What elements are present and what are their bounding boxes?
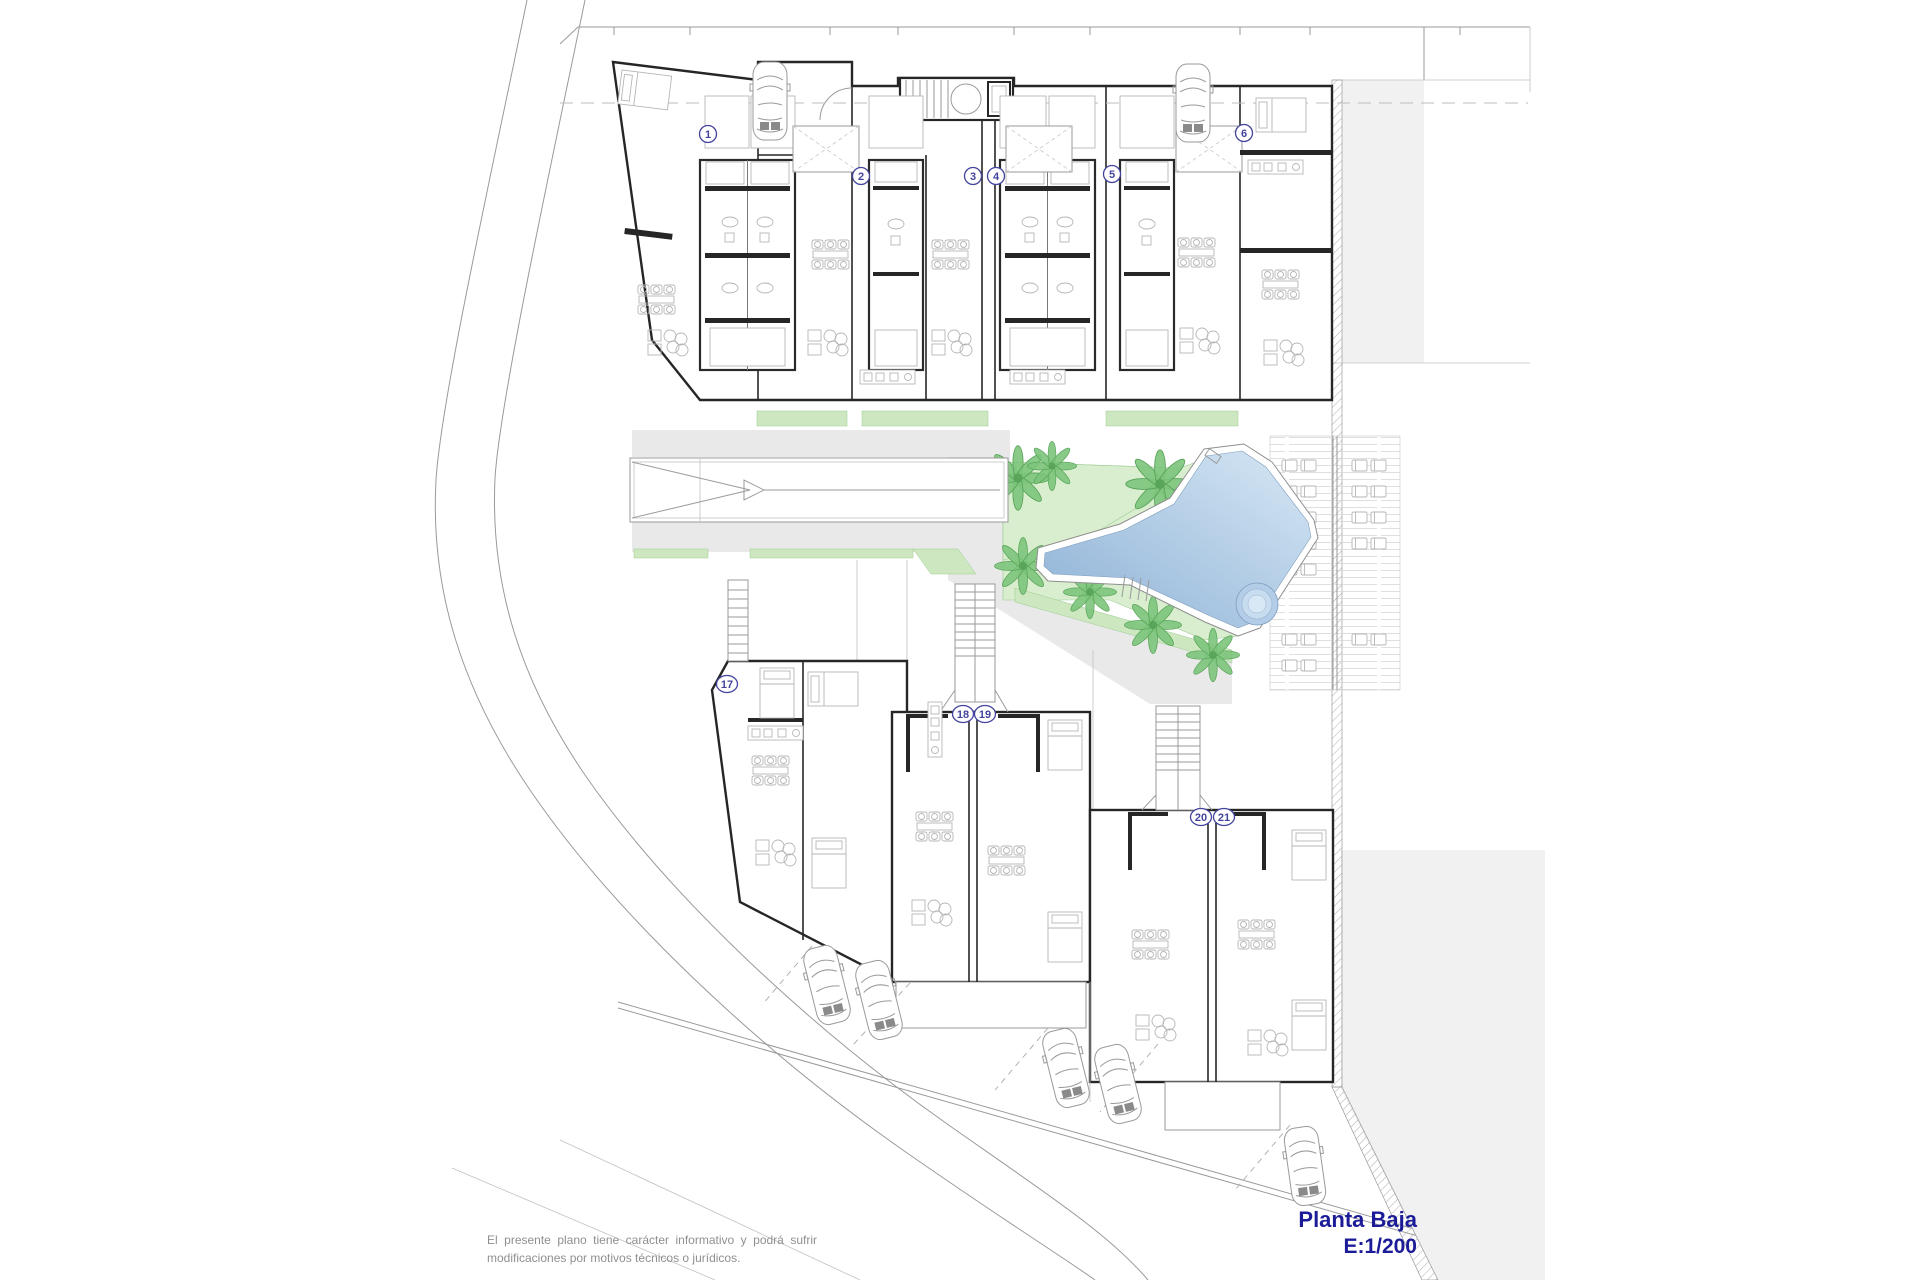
terrace-green-strip bbox=[862, 411, 988, 426]
unit-label-1: 1 bbox=[700, 126, 717, 143]
unit-label-18: 18 bbox=[953, 706, 974, 723]
disclaimer-line2: modificaciones por motivos técnicos o ju… bbox=[487, 1249, 817, 1267]
stair-s2 bbox=[1142, 706, 1212, 810]
floor-plan-drawing: 1234561718192021 bbox=[0, 0, 1920, 1280]
side-street-area bbox=[1342, 80, 1424, 363]
unit-label-17: 17 bbox=[717, 676, 738, 693]
unit-label-21: 21 bbox=[1214, 809, 1235, 826]
svg-text:1: 1 bbox=[705, 129, 711, 141]
unit-label-4: 4 bbox=[988, 168, 1005, 185]
svg-text:4: 4 bbox=[993, 171, 1000, 183]
jacuzzi bbox=[1236, 583, 1278, 625]
garage-ramp bbox=[630, 458, 1008, 522]
unit-label-2: 2 bbox=[853, 168, 870, 185]
unit-label-19: 19 bbox=[975, 706, 996, 723]
floor-plan-page: 1234561718192021 Planta Baja E:1/200 El … bbox=[0, 0, 1920, 1280]
svg-text:21: 21 bbox=[1218, 812, 1230, 824]
lower-buildings bbox=[712, 580, 1333, 1190]
stair-b1 bbox=[728, 580, 748, 661]
disclaimer-note: El presente plano tiene carácter informa… bbox=[487, 1231, 817, 1267]
unit-label-3: 3 bbox=[965, 168, 982, 185]
disclaimer-line1: El presente plano tiene carácter informa… bbox=[487, 1231, 817, 1249]
plan-title: Planta Baja bbox=[1037, 1206, 1417, 1234]
svg-text:17: 17 bbox=[721, 679, 733, 691]
block-unit17 bbox=[712, 580, 907, 988]
plan-scale: E:1/200 bbox=[1037, 1234, 1417, 1260]
unit-label-6: 6 bbox=[1236, 125, 1253, 142]
svg-text:2: 2 bbox=[858, 171, 864, 183]
unit-label-5: 5 bbox=[1104, 166, 1121, 183]
boundary-ticks bbox=[614, 27, 1460, 35]
svg-text:3: 3 bbox=[970, 171, 976, 183]
path-green-strip bbox=[634, 549, 708, 558]
unit-label-20: 20 bbox=[1191, 809, 1212, 826]
terrace-green-strip bbox=[757, 411, 847, 426]
svg-text:18: 18 bbox=[957, 709, 969, 721]
block-units18-19 bbox=[892, 584, 1090, 1028]
svg-text:20: 20 bbox=[1195, 812, 1207, 824]
terrace bbox=[1165, 1082, 1280, 1130]
svg-text:5: 5 bbox=[1109, 169, 1115, 181]
terrace-green-strip bbox=[1106, 411, 1238, 426]
svg-text:6: 6 bbox=[1241, 128, 1247, 140]
path-green-strip bbox=[750, 549, 913, 558]
terrace bbox=[896, 982, 1086, 1028]
svg-text:19: 19 bbox=[979, 709, 991, 721]
title-block: Planta Baja E:1/200 bbox=[1037, 1206, 1417, 1260]
